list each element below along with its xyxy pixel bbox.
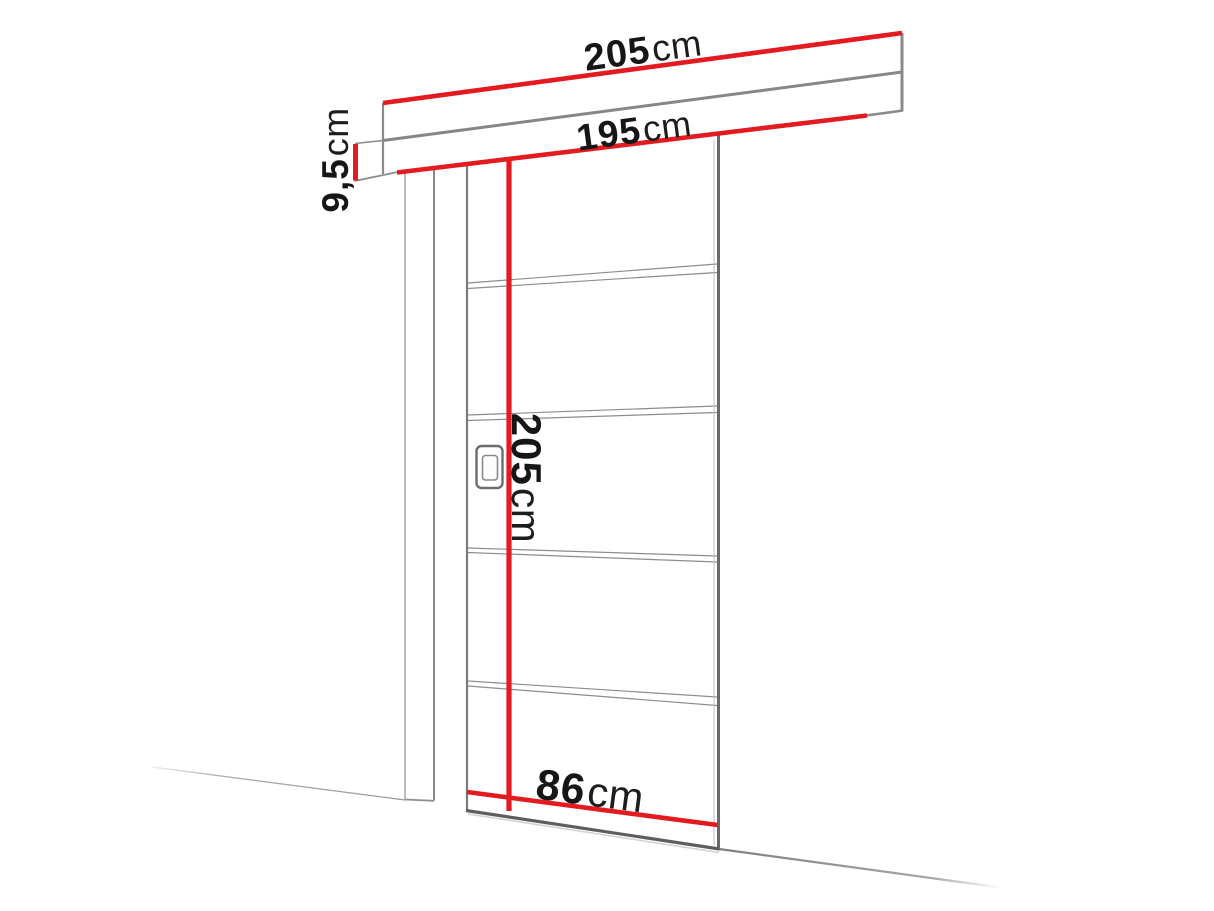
door-height-unit: cm: [503, 488, 549, 543]
rail-height-value: 9,5: [315, 158, 356, 212]
clear-width-unit: cm: [640, 104, 694, 150]
handle-inner: [483, 456, 498, 481]
rail-height-label: 9,5cm: [317, 107, 355, 212]
door-handle: [477, 446, 503, 488]
rail-length-value: 205: [581, 29, 652, 79]
door-height-label: 205cm: [505, 413, 547, 543]
sliding-door-dimension-diagram: 205cm 195cm 9,5cm 205cm 86cm: [0, 0, 1214, 911]
door-height-value: 205: [503, 413, 550, 486]
door-width-unit: cm: [585, 767, 647, 821]
rail-end-tab: [355, 140, 383, 181]
rail-length-unit: cm: [649, 22, 704, 69]
door-width-value: 86: [533, 761, 589, 815]
clear-width-value: 195: [574, 109, 644, 158]
floor-line-right: [719, 849, 1004, 888]
rail-height-unit: cm: [316, 107, 356, 156]
wall-opening: [152, 168, 434, 801]
wall-corner-segment: [405, 800, 434, 801]
floor-line-left: [152, 767, 405, 800]
